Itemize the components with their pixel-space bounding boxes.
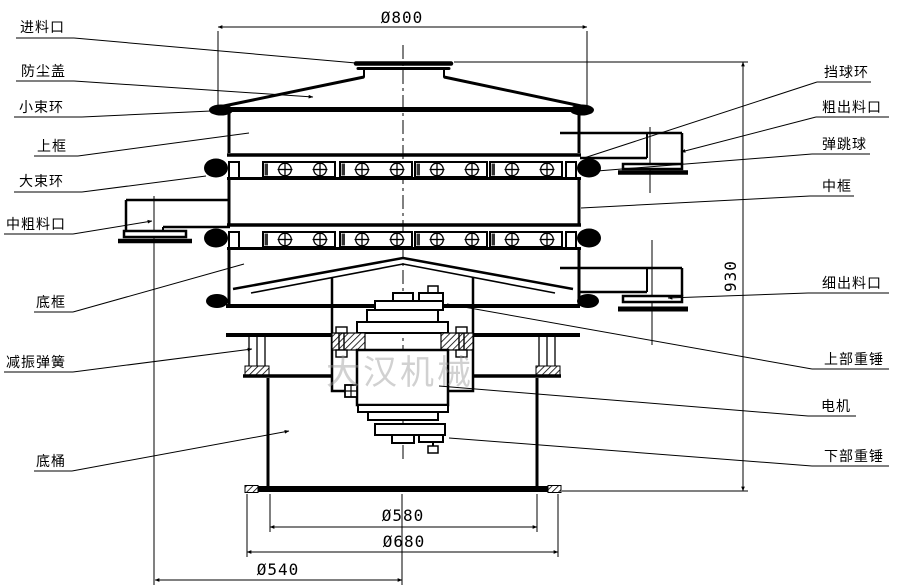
screen-deck-1 (227, 155, 581, 179)
vibrating-screen-drawing: 大汉机械 Ø800 930 Ø580 Ø680 Ø540 (0, 0, 897, 587)
label-coarse-outlet: 粗出料口 (822, 100, 882, 116)
label-middle-frame: 中框 (822, 179, 852, 195)
label-damping-spring: 减振弹簧 (6, 355, 66, 371)
label-upper-frame: 上框 (37, 139, 67, 155)
label-lower-weight: 下部重锤 (824, 449, 884, 465)
dust-cover-part (214, 77, 590, 110)
dim-total-height: 930 (721, 260, 740, 292)
label-upper-weight: 上部重锤 (824, 352, 884, 368)
part-labels-left: 进料口 防尘盖 小束环 上框 大束环 中粗料口 底框 减振弹簧 底桶 (6, 20, 67, 470)
label-small-clamp-ring: 小束环 (19, 100, 64, 116)
lower-clamp-ring-left (206, 294, 228, 308)
label-feed-inlet: 进料口 (20, 20, 65, 36)
dim-barrel-outer: Ø680 (383, 532, 426, 551)
label-ball-stop-ring: 挡球环 (824, 65, 869, 81)
label-fine-outlet: 细出料口 (822, 276, 882, 292)
label-dust-cover: 防尘盖 (21, 64, 66, 80)
damping-spring-right (536, 337, 560, 375)
label-bottom-barrel: 底桶 (36, 454, 66, 470)
big-clamp-ring-right-1 (577, 159, 601, 178)
screen-deck-2 (227, 225, 581, 249)
technical-drawing-page: 大汉机械 Ø800 930 Ø580 Ø680 Ø540 (0, 0, 897, 587)
dim-outlet-offset: Ø540 (257, 560, 300, 579)
label-mid-coarse-outlet: 中粗料口 (6, 217, 66, 233)
big-clamp-ring-left-1 (204, 159, 228, 178)
small-clamp-ring-right (570, 105, 594, 116)
label-bottom-frame: 底框 (36, 295, 66, 311)
big-clamp-ring-left-2 (204, 229, 228, 248)
label-bouncing-ball: 弹跳球 (822, 137, 867, 153)
damping-spring-left (245, 337, 269, 375)
label-motor: 电机 (821, 399, 851, 415)
dim-barrel-inner: Ø580 (382, 506, 425, 525)
dim-top-width: Ø800 (381, 8, 424, 27)
part-labels-right: 挡球环 粗出料口 弹跳球 中框 细出料口 上部重锤 电机 下部重锤 (821, 65, 884, 465)
big-clamp-ring-right-2 (577, 229, 601, 248)
frame-walls (229, 111, 579, 304)
label-big-clamp-ring: 大束环 (19, 174, 64, 190)
